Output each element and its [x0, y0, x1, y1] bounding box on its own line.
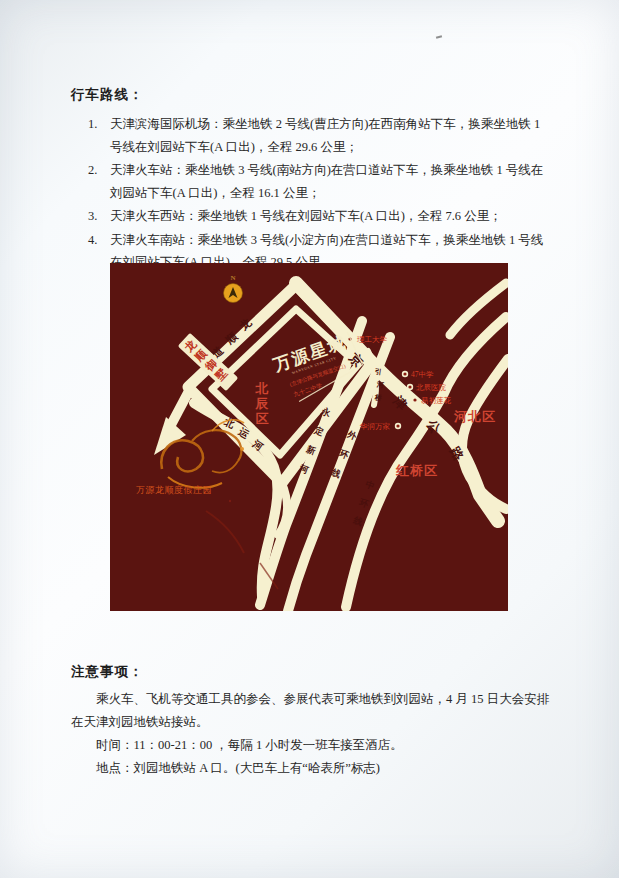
- poi-label-ligong: 理工大学: [357, 335, 388, 344]
- compass-n-label: N: [230, 274, 235, 282]
- road-label-char: 河: [375, 380, 384, 389]
- notes-paragraph: 乘火车、飞机等交通工具的参会、参展代表可乘地铁到刘园站，4 月 15 日大会安排…: [71, 688, 553, 734]
- poi-label-hospital: 北辰医院: [416, 383, 447, 392]
- route-number: 2.: [88, 159, 110, 204]
- route-number: 1.: [88, 113, 110, 158]
- routes-section-heading: 行车路线：: [71, 86, 144, 104]
- route-item: 3. 天津火车西站：乘坐地铁 1 号线在刘园站下车(A 口出)，全程 7.6 公…: [88, 205, 550, 228]
- poi-label-school47: 47中学: [411, 370, 434, 379]
- route-number: 3.: [88, 205, 110, 228]
- routes-list: 1. 天津滨海国际机场：乘坐地铁 2 号线(曹庄方向)在西南角站下车，换乘坐地铁…: [88, 113, 550, 275]
- poi-label-huarun: 华润万家: [359, 422, 391, 431]
- scan-speck: [436, 35, 442, 38]
- notes-body: 乘火车、飞机等交通工具的参会、参展代表可乘地铁到刘园站，4 月 15 日大会安排…: [71, 688, 553, 780]
- route-text: 天津火车西站：乘坐地铁 1 号线在刘园站下车(A 口出)，全程 7.6 公里；: [110, 205, 550, 228]
- district-label-char: 辰: [255, 396, 269, 411]
- route-item: 2. 天津火车站：乘坐地铁 3 号线(南站方向)在营口道站下车，换乘坐地铁 1 …: [88, 159, 550, 204]
- route-text: 天津滨海国际机场：乘坐地铁 2 号线(曹庄方向)在西南角站下车，换乘坐地铁 1 …: [110, 113, 550, 158]
- district-label-hebei: 河北区: [453, 409, 496, 424]
- poi-label-lotus: 易初莲花: [421, 396, 452, 405]
- location-map-image: N 龙 顺 道 北 运 河 永 定 新 河 外 环 线 中 环: [110, 263, 508, 611]
- district-label-char: 北: [255, 381, 269, 396]
- map-svg: N 龙 顺 道 北 运 河 永 定 新 河 外 环 线 中 环: [110, 263, 508, 611]
- notes-time-line: 时间：11：00-21：00 ，每隔 1 小时发一班车接至酒店。: [96, 734, 553, 757]
- scanned-document-page: 行车路线： 1. 天津滨海国际机场：乘坐地铁 2 号线(曹庄方向)在西南角站下车…: [0, 0, 619, 878]
- notes-section-heading: 注意事项：: [71, 663, 144, 681]
- resort-name-label: 万源龙顺度假庄园: [136, 485, 212, 495]
- district-label-char: 区: [256, 411, 269, 426]
- notes-place-line: 地点：刘园地铁站 A 口。(大巴车上有“哈表所”标志): [96, 757, 553, 780]
- route-item: 1. 天津滨海国际机场：乘坐地铁 2 号线(曹庄方向)在西南角站下车，换乘坐地铁…: [88, 113, 550, 158]
- route-number: 4.: [88, 229, 110, 274]
- route-text: 天津火车站：乘坐地铁 3 号线(南站方向)在营口道站下车，换乘坐地铁 1 号线在…: [110, 159, 550, 204]
- road-label-char: 引: [374, 368, 382, 377]
- district-label-hongqiao: 红桥区: [395, 463, 438, 478]
